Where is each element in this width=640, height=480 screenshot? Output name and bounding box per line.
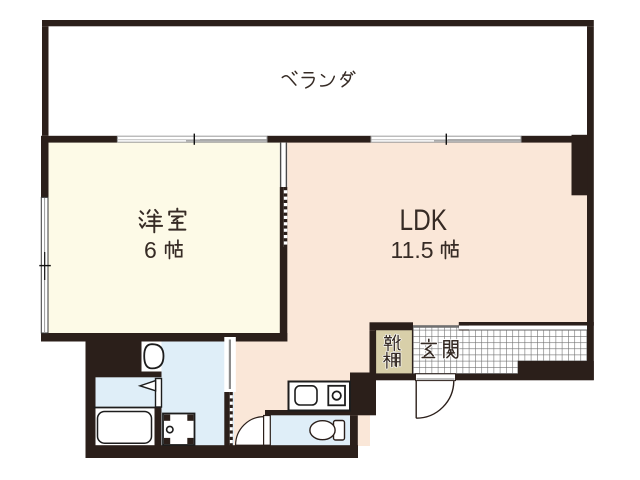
svg-text:11.5: 11.5 bbox=[391, 237, 434, 263]
svg-text:6: 6 bbox=[144, 237, 157, 263]
svg-text:LDK: LDK bbox=[400, 204, 448, 237]
